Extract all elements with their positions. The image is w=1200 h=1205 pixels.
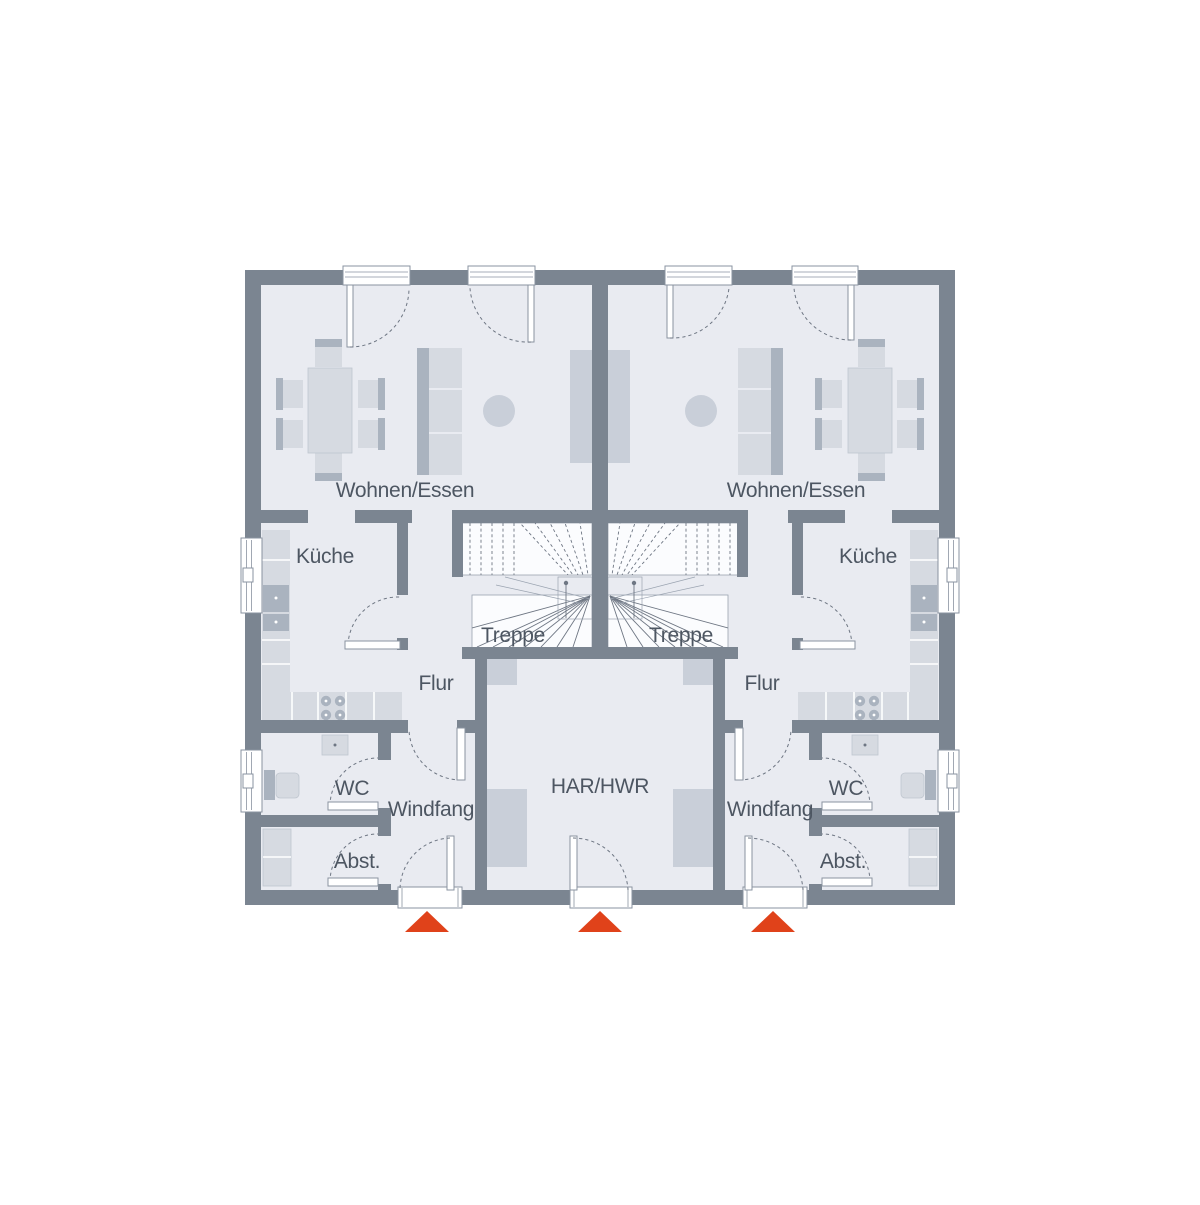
window-icon bbox=[241, 750, 262, 812]
floor-plan-drawing: Wohnen/Essen Wohnen/Essen Küche Küche Tr… bbox=[0, 0, 1200, 1200]
label-utility: HAR/HWR bbox=[551, 775, 649, 798]
wall-segment bbox=[475, 659, 487, 890]
counter bbox=[262, 692, 402, 722]
chair-icon bbox=[315, 339, 342, 347]
coffee-table-icon bbox=[685, 395, 717, 427]
wall-segment bbox=[452, 510, 592, 523]
label-wc-right: WC bbox=[829, 777, 864, 800]
sofa-cushion bbox=[738, 390, 771, 432]
chair-icon bbox=[276, 418, 283, 450]
wall-segment bbox=[809, 720, 822, 760]
wall-segment bbox=[892, 510, 939, 523]
sideboard-right-icon bbox=[608, 350, 630, 463]
wall-segment bbox=[737, 523, 748, 577]
wall-segment bbox=[792, 510, 803, 595]
label-stairs-left: Treppe bbox=[481, 624, 545, 647]
appliance-block bbox=[487, 657, 517, 685]
chair-icon bbox=[897, 420, 917, 448]
chair-icon bbox=[283, 380, 303, 408]
wall-segment bbox=[397, 510, 408, 595]
wall-segment bbox=[261, 815, 378, 827]
window-icon bbox=[938, 750, 959, 812]
wall-segment bbox=[809, 884, 822, 890]
appliance-block bbox=[683, 657, 713, 685]
wall-segment bbox=[378, 720, 391, 760]
toilet-icon bbox=[925, 770, 936, 800]
label-vestibule-left: Windfang bbox=[388, 798, 474, 821]
label-hallway-left: Flur bbox=[419, 672, 454, 695]
toilet-icon bbox=[901, 773, 924, 798]
toilet-icon bbox=[276, 773, 299, 798]
wall-segment bbox=[261, 510, 308, 523]
sofa-cushion bbox=[738, 348, 771, 388]
sofa-cushion bbox=[738, 434, 771, 475]
wall-segment bbox=[608, 510, 748, 523]
sofa-back bbox=[417, 348, 429, 475]
label-stairs-right: Treppe bbox=[649, 624, 713, 647]
wall-segment bbox=[452, 523, 463, 577]
floor-plan-canvas: Wohnen/Essen Wohnen/Essen Küche Küche Tr… bbox=[0, 0, 1200, 1200]
chair-icon bbox=[315, 453, 342, 473]
entrance-markers bbox=[405, 911, 795, 932]
chair-icon bbox=[378, 418, 385, 450]
sofa-left-icon bbox=[417, 348, 462, 475]
label-living-right: Wohnen/Essen bbox=[727, 479, 865, 502]
chair-icon bbox=[858, 453, 885, 473]
label-kitchen-left: Küche bbox=[296, 545, 354, 568]
storage-shelf-left-icon bbox=[263, 829, 291, 886]
sofa-cushion bbox=[429, 348, 462, 388]
label-storage-left: Abst. bbox=[334, 850, 380, 873]
sofa-cushion bbox=[429, 390, 462, 432]
storage-shelf-right-icon bbox=[909, 829, 937, 886]
window-icon bbox=[241, 538, 262, 613]
window-icon bbox=[938, 538, 959, 613]
chair-icon bbox=[315, 347, 342, 367]
label-living-left: Wohnen/Essen bbox=[336, 479, 474, 502]
entrance-arrow-icon bbox=[751, 911, 795, 932]
sofa-right-icon bbox=[738, 348, 783, 475]
chair-icon bbox=[822, 380, 842, 408]
chair-icon bbox=[917, 378, 924, 410]
sideboard-left-icon bbox=[570, 350, 592, 463]
label-hallway-right: Flur bbox=[745, 672, 780, 695]
chair-icon bbox=[276, 378, 283, 410]
wall-segment bbox=[378, 884, 391, 890]
label-storage-right: Abst. bbox=[820, 850, 866, 873]
chair-icon bbox=[897, 380, 917, 408]
chair-icon bbox=[815, 378, 822, 410]
chair-icon bbox=[815, 418, 822, 450]
entrance-arrow-icon bbox=[405, 911, 449, 932]
counter bbox=[798, 692, 938, 722]
chair-icon bbox=[917, 418, 924, 450]
wall-segment bbox=[822, 815, 939, 827]
chair-icon bbox=[858, 339, 885, 347]
chair-icon bbox=[358, 420, 378, 448]
chair-icon bbox=[378, 378, 385, 410]
sofa-cushion bbox=[429, 434, 462, 475]
chair-icon bbox=[358, 380, 378, 408]
wall-segment bbox=[592, 285, 608, 659]
dining-table-icon bbox=[308, 368, 352, 453]
chair-icon bbox=[858, 347, 885, 367]
appliance-block bbox=[673, 789, 713, 867]
chair-icon bbox=[822, 420, 842, 448]
chair-icon bbox=[283, 420, 303, 448]
coffee-table-icon bbox=[483, 395, 515, 427]
dining-table-icon bbox=[848, 368, 892, 453]
label-kitchen-right: Küche bbox=[839, 545, 897, 568]
entrance-arrow-icon bbox=[578, 911, 622, 932]
sofa-back bbox=[771, 348, 783, 475]
wall-segment bbox=[713, 659, 725, 890]
label-vestibule-right: Windfang bbox=[727, 798, 813, 821]
toilet-icon bbox=[264, 770, 275, 800]
wall-segment bbox=[462, 647, 738, 659]
appliance-block bbox=[487, 789, 527, 867]
label-wc-left: WC bbox=[335, 777, 370, 800]
